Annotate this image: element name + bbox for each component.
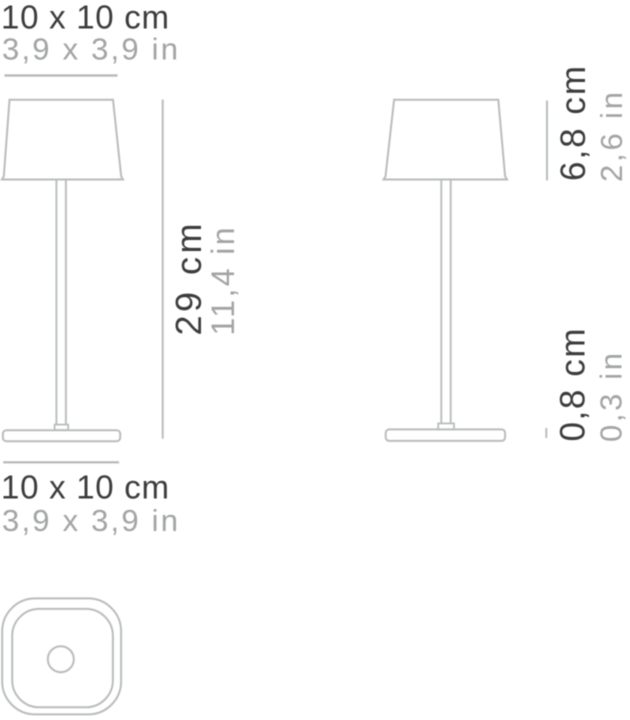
svg-text:0,8 cm: 0,8 cm bbox=[554, 329, 593, 442]
svg-text:2,6 in: 2,6 in bbox=[594, 92, 629, 182]
svg-text:10 x 10 cm: 10 x 10 cm bbox=[1, 0, 169, 36]
svg-text:0,3 in: 0,3 in bbox=[594, 353, 629, 442]
svg-text:29 cm: 29 cm bbox=[168, 224, 209, 336]
svg-text:6,8 cm: 6,8 cm bbox=[554, 66, 593, 181]
svg-text:10 x 10 cm: 10 x 10 cm bbox=[1, 469, 169, 506]
